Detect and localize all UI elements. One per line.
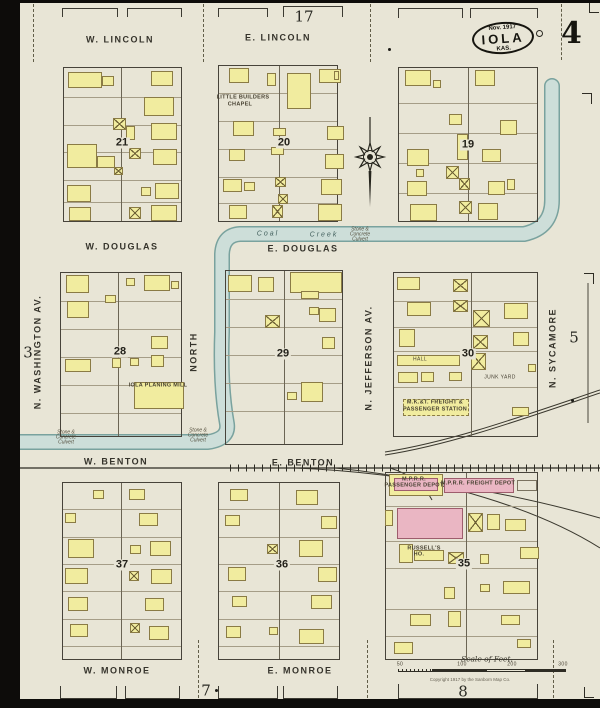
building [233,121,254,136]
building [258,277,274,292]
building [105,295,116,303]
corner-mark [584,273,594,284]
lot-line [386,506,537,507]
building [488,181,505,195]
building [319,308,336,322]
alley-line [121,483,122,659]
corner-mark [582,93,592,104]
lot-line [386,541,537,542]
lot-line [64,202,181,203]
adjacent-sheet-number: 7 [201,684,211,699]
building [421,372,434,382]
building [487,514,500,530]
building-stable [453,279,468,292]
building [141,187,151,196]
building [67,301,89,318]
index-dot [388,48,391,51]
index-dot [571,399,574,402]
alley-line [279,483,280,659]
building-stable [272,205,283,218]
building-stable [473,310,490,327]
building [505,519,526,531]
building [318,204,342,221]
building [65,568,88,584]
building-stable [275,177,286,187]
building [150,541,171,556]
street-label: NORTH [190,332,199,372]
building [151,336,168,349]
lot-line [63,646,181,647]
building [512,407,529,416]
building [229,149,245,161]
stamp-city: IOLA [481,29,525,47]
street-label: W. MONROE [84,667,151,676]
building-stable [129,148,141,159]
map-annotation: 100 [457,663,467,668]
block-number: 29 [275,349,291,360]
building-stable [265,315,280,328]
building [225,515,240,526]
lot-line [63,619,181,620]
building [449,372,462,381]
street-label: W. DOUGLAS [86,243,159,252]
creek-label: Coal [257,231,279,238]
building-stable [459,201,472,214]
building [500,120,517,135]
map-canvas: W. LINCOLNE. LINCOLNW. DOUGLASE. DOUGLAS… [0,0,600,708]
lot-line [63,591,181,592]
city-block [218,482,340,660]
building [528,364,536,372]
block-number: 19 [460,140,476,151]
lot-line [386,636,537,637]
building-label: M.P.R.R. FREIGHT DEPOT [441,481,515,487]
offsheet-block-stub [125,686,180,699]
building [267,73,276,86]
building [503,581,530,594]
section-dash-line [33,4,34,62]
building [93,490,104,499]
building [126,278,135,286]
offsheet-block-stub [218,8,268,17]
building [151,71,173,86]
map-annotation: HALL [413,358,427,363]
building [232,596,247,607]
stamp-mark [536,30,543,37]
building [151,355,164,367]
culvert-note: Culvert [352,238,368,243]
building [410,204,437,221]
building [153,149,177,165]
building [287,392,297,400]
building [70,624,88,637]
building [230,489,248,501]
creek-label: Creek [310,232,339,239]
building [301,382,323,402]
scale-bar-segment [486,669,526,672]
building-stable [267,544,278,554]
adjacent-sheet-number: 3 [23,346,33,361]
building [273,128,286,136]
building [416,169,424,177]
building-outline [517,480,537,491]
building [244,182,255,191]
street-label: E. LINCOLN [245,34,311,43]
culvert-note: Culvert [190,439,206,444]
building [334,71,339,80]
street-label: E. MONROE [267,667,332,676]
building [229,68,249,83]
street-label: E. DOUGLAS [267,245,338,254]
block-number: 36 [274,560,290,571]
building-stable [113,118,126,130]
street-label: N. SYCAMORE [549,308,558,388]
building-stable [130,623,140,633]
building-stable [129,571,139,581]
street-label: W. LINCOLN [86,36,154,45]
building [507,179,515,190]
building [311,595,332,609]
building [68,597,88,611]
building [501,615,520,625]
lot-line [394,387,537,388]
building [67,144,97,168]
building [67,185,91,202]
lot-line [63,537,181,538]
building [407,302,431,316]
building-stable [473,335,488,349]
stamp-state: KAS. [496,45,511,52]
scale-bar-segment [398,669,432,672]
building [480,584,490,592]
building [149,626,169,640]
building [407,181,427,196]
building [398,372,418,383]
block-number: 21 [114,138,130,149]
building [144,97,174,116]
building [399,329,415,347]
building-stable [446,166,459,179]
building [139,513,158,526]
building [327,126,344,140]
building [478,203,498,220]
building [520,547,539,559]
offsheet-block-stub [127,8,182,17]
building [397,355,460,366]
building-label: HO. [414,552,425,558]
building-stable [114,167,123,175]
adjacent-sheet-number: 5 [569,331,579,346]
corner-mark [589,2,599,13]
building [171,281,179,289]
building-stable [459,178,470,190]
section-dash-line [367,640,368,698]
building [385,510,393,526]
building [229,205,247,219]
building-label: LITTLE BUILDERS [217,95,270,101]
building [325,154,344,169]
lot-line [394,327,537,328]
building-label: IOLA PLANING MILL [129,383,188,389]
building [299,540,323,557]
building [66,275,89,293]
street-label: N. JEFFERSON AV. [365,305,374,410]
building [269,627,278,635]
building [397,277,420,290]
street-label: W. BENTON [84,458,148,467]
scale-bar-segment [432,669,486,672]
building-label: PASSENGER STATION [403,407,467,413]
building-stable [278,194,288,204]
offsheet-block-stub [283,6,343,17]
building [321,516,337,529]
building [68,72,102,88]
building [504,303,528,319]
building [480,554,489,564]
map-annotation: 50 [397,663,403,668]
offsheet-block-stub [62,8,118,17]
block-number: 20 [276,138,292,149]
building [407,149,429,166]
block-number: 35 [456,559,472,570]
building [102,76,114,86]
building [449,114,462,125]
building [405,70,431,86]
building-stable [468,513,483,532]
index-dot [215,689,218,692]
building [223,179,242,192]
building [151,123,177,140]
building [299,629,324,644]
city-block [62,482,182,660]
building [513,332,529,346]
building [68,539,94,558]
building [129,489,145,500]
section-dash-line [370,4,371,62]
street-label: N. WASHINGTON AV. [34,295,43,410]
building [155,183,179,199]
section-dash-line [198,640,199,698]
lot-line [63,509,181,510]
building [448,611,461,627]
offsheet-block-stub [218,686,278,699]
building [322,337,335,349]
building [65,513,76,523]
page-edge-top [0,0,600,3]
map-annotation: JUNK YARD [484,376,515,381]
building [433,80,441,88]
page-edge-left [0,0,20,708]
building [130,545,141,554]
page-edge-bottom [0,699,600,708]
building [130,358,139,366]
offsheet-block-stub [398,684,538,699]
corner-mark [584,687,594,698]
building [321,179,342,195]
building [475,70,495,86]
building [482,149,501,162]
lot-line [386,609,537,610]
building-label: CHAPEL [228,102,252,108]
building [226,626,241,638]
building [112,358,121,368]
building [97,156,115,168]
lot-line [64,180,181,181]
map-annotation: 300 [558,663,568,668]
building-label: PASSENGER DEPOT [384,483,443,489]
map-annotation: 200 [507,663,517,668]
building [287,73,311,109]
building [228,275,252,292]
culvert-note: Culvert [58,441,74,446]
building [318,567,337,582]
section-dash-line [561,4,562,60]
building [144,275,170,291]
block-number: 28 [112,347,128,358]
section-dash-line [203,4,204,62]
copyright-note: Copyright 1917 by the Sanborn Map Co. [430,678,511,683]
building [290,272,342,293]
building [296,490,318,505]
block-number: 37 [114,560,130,571]
building [444,587,455,599]
offsheet-block-stub [60,686,117,699]
building [410,614,431,626]
scale-bar [398,668,566,673]
lot-line [61,413,181,414]
building-stable [129,207,141,219]
building [65,359,91,372]
offsheet-block-stub [470,8,538,18]
building [69,207,91,221]
building [517,639,531,648]
street-label: E. BENTON [272,459,334,468]
building [151,569,172,584]
sheet-number: 4 [561,16,582,51]
building [228,567,246,581]
building-brick [397,508,463,539]
offsheet-block-stub [283,686,338,699]
scale-bar-segment [526,669,566,672]
building [151,205,177,221]
scale-title: Scale of Feet. [461,655,513,663]
building-label: M.K.&T. FREIGHT & [407,400,463,406]
offsheet-block-stub [398,8,463,18]
building [145,598,164,611]
building [309,307,319,315]
building [301,291,319,299]
block-number: 30 [460,349,476,360]
building [394,642,413,654]
building-stable [453,300,468,312]
lot-line [61,329,181,330]
